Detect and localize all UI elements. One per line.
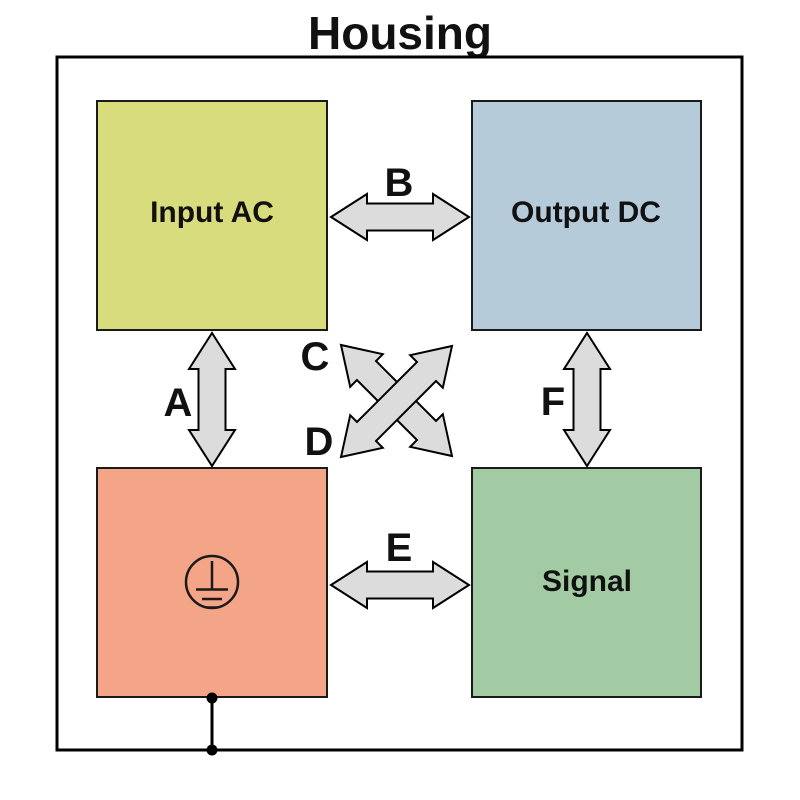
earth-node-housing [207,745,218,756]
label-connection-e: E [386,526,413,570]
label-connection-d: D [305,420,334,464]
block-signal-label: Signal [542,565,632,598]
diagram-canvas: Housing Input AC Output DC Signal [0,0,800,800]
block-input-ac-label: Input AC [150,196,274,229]
diagram-title: Housing [308,7,492,59]
label-connection-f: F [541,380,565,424]
label-connection-c: C [301,335,330,379]
label-connection-b: B [385,161,414,205]
block-output-dc-label: Output DC [511,196,661,229]
housing-diagram: Housing Input AC Output DC Signal [0,0,800,800]
earth-node-block [207,693,218,704]
label-connection-a: A [164,381,193,425]
